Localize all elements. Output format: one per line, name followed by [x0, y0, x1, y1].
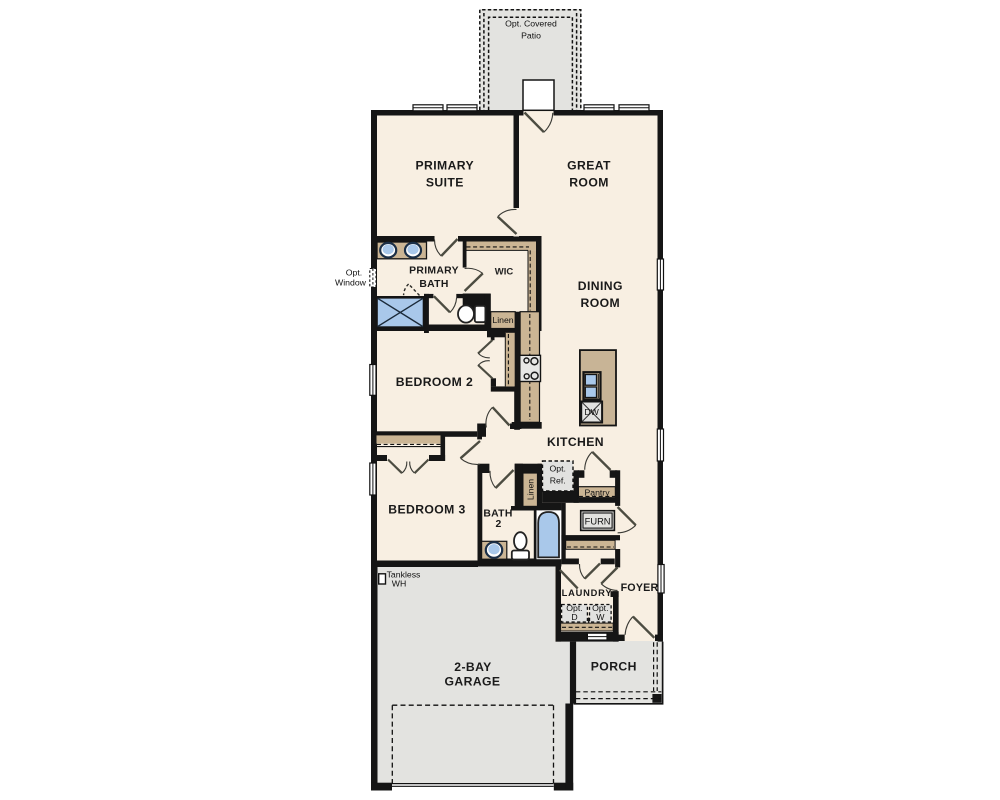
svg-text:ROOM: ROOM	[581, 296, 621, 310]
svg-text:Opt. Covered: Opt. Covered	[505, 19, 557, 29]
svg-text:KITCHEN: KITCHEN	[547, 435, 604, 449]
svg-text:Linen: Linen	[526, 479, 536, 500]
svg-text:SUITE: SUITE	[426, 176, 464, 190]
svg-text:2: 2	[495, 519, 501, 530]
svg-text:Opt.: Opt.	[549, 464, 565, 474]
svg-text:WIC: WIC	[495, 267, 514, 278]
svg-text:PORCH: PORCH	[591, 660, 637, 674]
svg-text:Patio: Patio	[521, 31, 541, 41]
svg-text:FURN: FURN	[585, 516, 611, 526]
svg-text:D: D	[571, 612, 577, 622]
svg-text:LAUNDRY: LAUNDRY	[562, 588, 613, 598]
svg-text:FOYER: FOYER	[621, 582, 659, 594]
svg-text:Linen: Linen	[492, 315, 513, 325]
svg-text:Ref.: Ref.	[550, 476, 566, 486]
svg-text:BEDROOM 2: BEDROOM 2	[396, 375, 473, 389]
svg-text:BATH: BATH	[419, 279, 448, 290]
svg-text:2-BAY: 2-BAY	[454, 660, 491, 674]
svg-text:WH: WH	[392, 579, 406, 589]
svg-text:Opt.: Opt.	[346, 268, 362, 278]
svg-text:GREAT: GREAT	[567, 159, 611, 173]
svg-text:DW: DW	[584, 407, 599, 417]
svg-text:W: W	[596, 612, 605, 622]
svg-text:Window: Window	[335, 278, 367, 288]
svg-text:Pantry: Pantry	[584, 487, 610, 497]
svg-text:ROOM: ROOM	[569, 176, 609, 190]
svg-text:PRIMARY: PRIMARY	[416, 159, 475, 173]
svg-text:BATH: BATH	[483, 509, 512, 520]
svg-text:GARAGE: GARAGE	[445, 675, 501, 689]
svg-text:BEDROOM 3: BEDROOM 3	[388, 503, 465, 517]
svg-text:PRIMARY: PRIMARY	[409, 266, 459, 277]
svg-text:DINING: DINING	[578, 279, 623, 293]
